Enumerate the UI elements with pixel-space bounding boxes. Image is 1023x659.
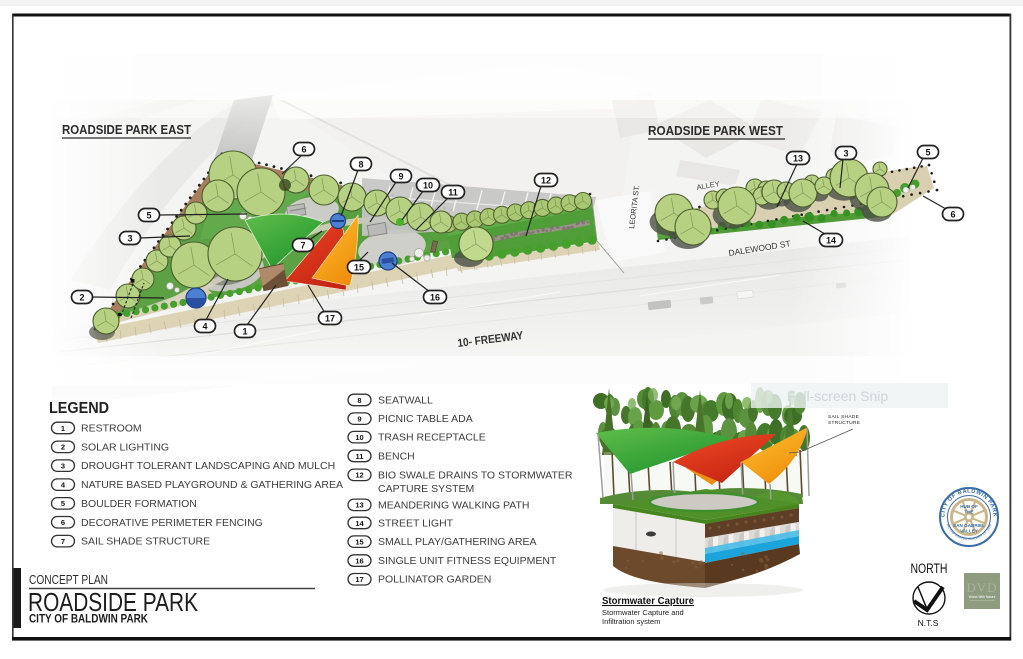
svg-text:STREET LIGHT: STREET LIGHT [378, 518, 454, 530]
svg-text:17: 17 [355, 575, 363, 584]
svg-text:MEANDERING WALKING PATH: MEANDERING WALKING PATH [378, 499, 530, 511]
svg-text:8: 8 [358, 159, 363, 169]
svg-text:16: 16 [355, 556, 363, 565]
svg-text:10: 10 [423, 180, 433, 190]
svg-text:6: 6 [301, 144, 306, 154]
svg-text:13: 13 [355, 501, 363, 510]
svg-text:6: 6 [61, 518, 65, 527]
svg-text:4: 4 [202, 321, 207, 331]
svg-text:VALLEY: VALLEY [960, 529, 978, 534]
svg-text:SMALL PLAY/GATHERING AREA: SMALL PLAY/GATHERING AREA [378, 536, 537, 548]
svg-text:Infiltration system: Infiltration system [602, 617, 660, 626]
svg-text:13: 13 [793, 153, 803, 163]
svg-text:12: 12 [355, 471, 363, 480]
svg-text:9: 9 [398, 171, 403, 181]
svg-text:CONCEPT PLAN: CONCEPT PLAN [29, 573, 108, 587]
svg-text:1: 1 [61, 424, 65, 433]
svg-text:15: 15 [354, 262, 364, 272]
svg-text:PICNIC TABLE ADA: PICNIC TABLE ADA [378, 413, 473, 425]
svg-text:SAIL SHADE STRUCTURE: SAIL SHADE STRUCTURE [81, 536, 210, 548]
svg-text:THE: THE [964, 510, 973, 515]
svg-text:11: 11 [356, 452, 364, 461]
svg-text:14: 14 [826, 235, 836, 245]
svg-text:HUB OF: HUB OF [960, 504, 978, 509]
svg-text:3: 3 [61, 462, 65, 471]
svg-text:6: 6 [950, 209, 955, 219]
svg-text:3: 3 [127, 233, 132, 243]
svg-text:SAIL SHADE: SAIL SHADE [828, 414, 859, 420]
svg-text:BOULDER FORMATION: BOULDER FORMATION [81, 498, 197, 510]
svg-text:7: 7 [300, 240, 305, 250]
svg-text:TRASH RECEPTACLE: TRASH RECEPTACLE [378, 432, 486, 444]
svg-text:3: 3 [843, 148, 848, 158]
svg-text:Stormwater Capture: Stormwater Capture [602, 595, 694, 607]
svg-text:BENCH: BENCH [378, 451, 415, 463]
svg-text:Works With Nature: Works With Nature [969, 595, 996, 599]
svg-text:8: 8 [357, 396, 361, 405]
svg-text:NATURE BASED PLAYGROUND & GATH: NATURE BASED PLAYGROUND & GATHERING AREA [81, 479, 343, 491]
svg-text:Stormwater Capture and: Stormwater Capture and [602, 608, 684, 617]
svg-text:POLLINATOR GARDEN: POLLINATOR GARDEN [378, 574, 491, 586]
svg-text:N.T.S: N.T.S [918, 618, 939, 628]
svg-text:14: 14 [355, 519, 364, 528]
svg-text:RESTROOM: RESTROOM [81, 423, 142, 435]
svg-text:9: 9 [357, 414, 361, 423]
svg-text:5: 5 [925, 147, 930, 157]
svg-text:SAN GABRIEL: SAN GABRIEL [953, 523, 985, 528]
svg-text:12: 12 [541, 175, 551, 185]
svg-text:1: 1 [242, 326, 247, 336]
svg-text:5: 5 [61, 499, 65, 508]
svg-text:DVD: DVD [966, 580, 997, 595]
svg-text:STRUCTURE: STRUCTURE [828, 420, 860, 426]
svg-text:15: 15 [355, 537, 363, 546]
svg-text:2: 2 [79, 292, 84, 302]
svg-text:10: 10 [355, 433, 363, 442]
svg-text:16: 16 [430, 292, 440, 302]
svg-text:ROADSIDE PARK EAST: ROADSIDE PARK EAST [62, 123, 191, 137]
svg-text:DECORATIVE PERIMETER FENCING: DECORATIVE PERIMETER FENCING [81, 517, 263, 529]
svg-text:SOLAR LIGHTING: SOLAR LIGHTING [81, 441, 169, 453]
svg-text:2: 2 [61, 443, 65, 452]
svg-text:BIO SWALE DRAINS TO STORMWATER: BIO SWALE DRAINS TO STORMWATER [378, 469, 573, 481]
svg-text:CAPTURE SYSTEM: CAPTURE SYSTEM [378, 483, 474, 495]
svg-text:SEATWALL: SEATWALL [378, 395, 433, 407]
svg-text:11: 11 [448, 187, 458, 197]
svg-text:NORTH: NORTH [911, 561, 948, 576]
svg-text:SINGLE UNIT FITNESS EQUIPMENT: SINGLE UNIT FITNESS EQUIPMENT [378, 555, 557, 567]
svg-text:DROUGHT TOLERANT LANDSCAPING A: DROUGHT TOLERANT LANDSCAPING AND MULCH [81, 460, 335, 472]
svg-text:ROADSIDE PARK WEST: ROADSIDE PARK WEST [648, 124, 783, 138]
svg-text:Full-screen Snip: Full-screen Snip [787, 388, 888, 404]
svg-text:CITY OF BALDWIN PARK: CITY OF BALDWIN PARK [29, 612, 148, 626]
svg-text:7: 7 [61, 537, 65, 546]
svg-text:17: 17 [325, 313, 335, 323]
svg-text:5: 5 [146, 210, 151, 220]
svg-text:LEGEND: LEGEND [49, 400, 109, 417]
